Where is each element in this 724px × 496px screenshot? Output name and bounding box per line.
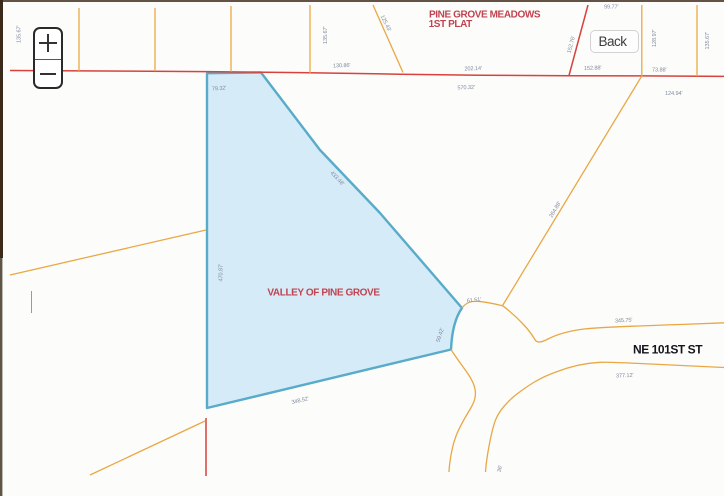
svg-text:VALLEY OF PINE GROVE: VALLEY OF PINE GROVE xyxy=(267,288,380,299)
svg-text:570.32': 570.32' xyxy=(457,85,475,92)
svg-text:73.88': 73.88' xyxy=(652,68,666,74)
svg-text:202.14': 202.14' xyxy=(464,66,482,73)
svg-text:1ST PLAT: 1ST PLAT xyxy=(429,19,473,30)
svg-text:79.32': 79.32' xyxy=(212,85,227,92)
svg-text:470.87': 470.87' xyxy=(219,264,225,282)
svg-text:130.86': 130.86' xyxy=(333,63,351,70)
svg-text:377.12': 377.12' xyxy=(616,373,634,380)
svg-text:128.97': 128.97' xyxy=(652,29,658,47)
svg-text:135.67': 135.67' xyxy=(17,25,23,43)
svg-text:99.77': 99.77' xyxy=(604,5,618,11)
svg-text:135.67': 135.67' xyxy=(323,26,329,44)
svg-text:152.88': 152.88' xyxy=(584,65,602,72)
svg-text:124.94': 124.94' xyxy=(665,91,683,97)
svg-text:135.67': 135.67' xyxy=(705,32,711,50)
svg-text:NE 101ST ST: NE 101ST ST xyxy=(633,343,703,357)
svg-text:345.75': 345.75' xyxy=(615,318,633,325)
